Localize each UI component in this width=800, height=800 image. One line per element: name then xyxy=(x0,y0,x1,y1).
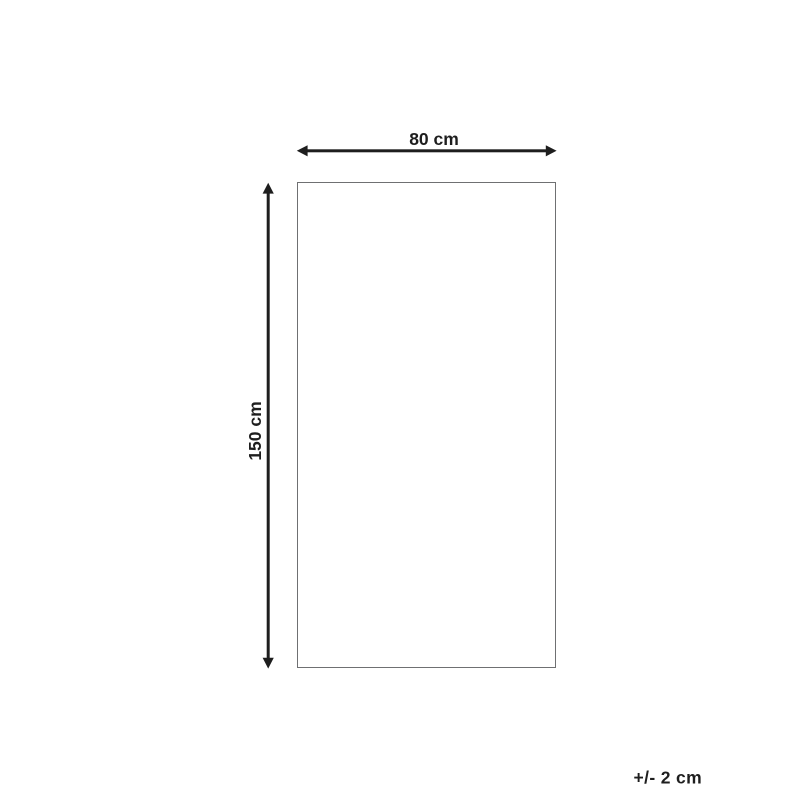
svg-text:80 cm: 80 cm xyxy=(409,129,459,149)
svg-text:+/- 2 cm: +/- 2 cm xyxy=(634,768,702,788)
svg-text:150 cm: 150 cm xyxy=(245,401,265,460)
